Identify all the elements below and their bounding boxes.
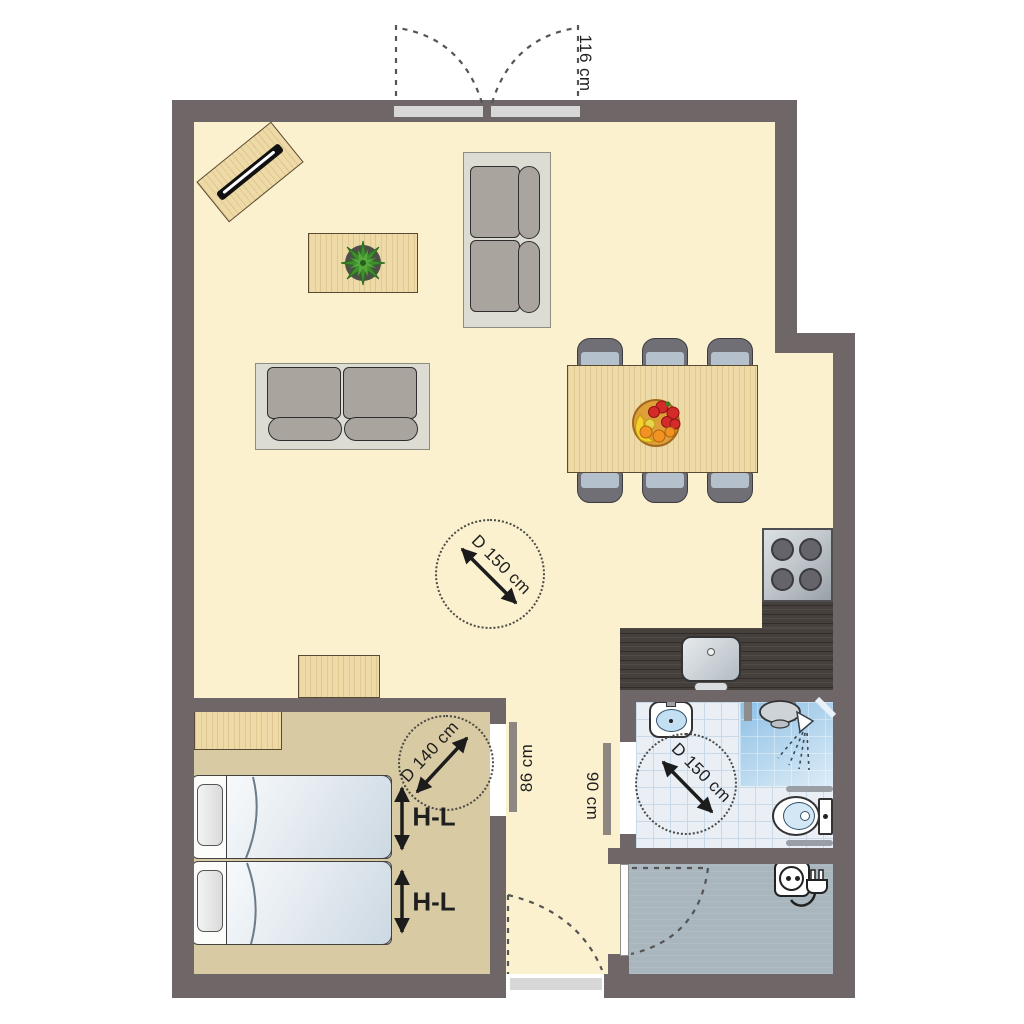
wall-bathroom-left-upper [620, 702, 636, 742]
wall-bedroom-right-upper [490, 698, 506, 724]
tv-screen-line [222, 150, 275, 194]
burner [799, 538, 822, 561]
kitchen-counter-corner [762, 602, 833, 628]
wall-bottom-right [604, 974, 855, 998]
living-sideboard [298, 655, 380, 698]
wall-right-lower [833, 333, 855, 998]
cistern-button [823, 814, 828, 819]
wall-utility-left-stub [608, 954, 629, 974]
floor-plan-canvas: 116 cm D 150 cm D 140 cm D 150 cm 86 cm … [0, 0, 1024, 1024]
outlet-pin [786, 876, 791, 881]
stove [762, 528, 833, 602]
bedroom-door-leaf [509, 722, 517, 812]
chair-seat [711, 473, 749, 488]
wall-bathroom-top [620, 690, 833, 702]
wall-bathroom-left-lower [620, 834, 636, 848]
bed-2-pillow [197, 870, 223, 932]
dining-table [567, 365, 758, 473]
bed-2-label: H-L [412, 887, 455, 918]
sofa-vertical-seat-1 [470, 166, 520, 238]
entry-door-swing-arcs [396, 25, 578, 103]
bed-1-duvet [226, 775, 392, 859]
toilet-inner [783, 802, 815, 830]
outlet-face [779, 866, 804, 891]
turning-circle-living [435, 519, 545, 629]
shower-wall-tab [788, 702, 796, 721]
wall-top [172, 100, 795, 122]
sofa-vertical-seat-2 [470, 240, 520, 312]
bed-1-pillow [197, 784, 223, 846]
entry-door-leaf-right [491, 106, 580, 117]
bed-2-duvet [226, 861, 392, 945]
shower-wall-tab [744, 702, 752, 721]
sofa-horizontal-seat-2 [343, 367, 417, 419]
bedroom-sideboard [194, 710, 282, 750]
bathroom-door-leaf [603, 743, 611, 835]
bedroom-door-width-label: 86 cm [517, 744, 537, 792]
wall-bottom-left [172, 974, 506, 998]
grab-bar [786, 840, 833, 846]
entry-width-label: 116 cm [575, 35, 595, 92]
burner [799, 568, 822, 591]
sofa-horizontal-back-2 [344, 417, 418, 441]
wall-bathroom-bottom [608, 848, 833, 864]
sofa-horizontal-back-1 [268, 417, 342, 441]
utility-door-leaf [620, 864, 629, 956]
sofa-vertical-back-2 [518, 241, 540, 313]
sofa-horizontal-seat-1 [267, 367, 341, 419]
hallway-floor [506, 698, 620, 974]
bed-1-label: H-L [412, 802, 455, 833]
sofa-vertical-back-1 [518, 166, 540, 239]
wall-bedroom-top [194, 698, 506, 712]
burner [771, 538, 794, 561]
wall-left [172, 100, 194, 998]
grab-bar [786, 786, 833, 792]
shower-area [740, 702, 833, 786]
bathroom-door-width-label: 90 cm [582, 772, 602, 820]
chair-seat [581, 473, 619, 488]
coffee-table [308, 233, 418, 293]
burner [771, 568, 794, 591]
washbasin-drain [669, 719, 673, 723]
toilet-flush-dot [800, 811, 810, 821]
wall-right-upper [775, 100, 797, 353]
sink-drain [707, 648, 715, 656]
outlet-pin [795, 876, 800, 881]
wall-bedroom-right-lower [490, 816, 506, 974]
chair-seat [646, 473, 684, 488]
kitchen-sink [681, 636, 741, 682]
entry-door-leaf-left [394, 106, 483, 117]
terrace-door-leaf [510, 978, 602, 990]
